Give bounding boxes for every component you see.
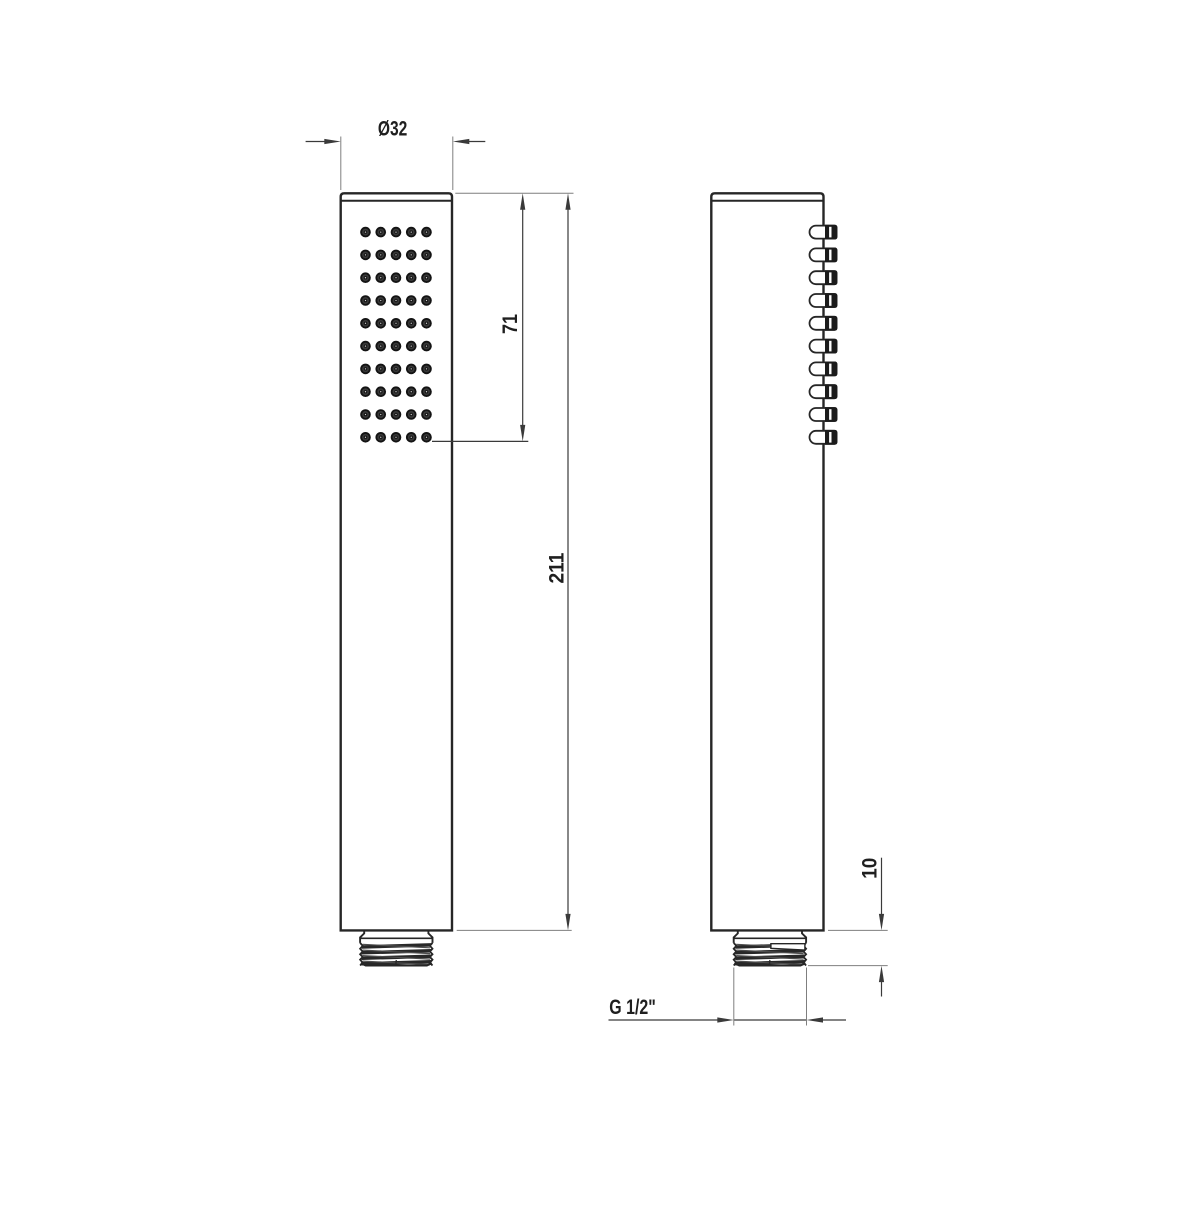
svg-text:G 1/2": G 1/2" — [609, 995, 656, 1019]
svg-text:Ø32: Ø32 — [378, 117, 407, 141]
svg-text:71: 71 — [498, 314, 522, 334]
svg-text:211: 211 — [544, 552, 568, 583]
svg-text:10: 10 — [858, 858, 882, 879]
